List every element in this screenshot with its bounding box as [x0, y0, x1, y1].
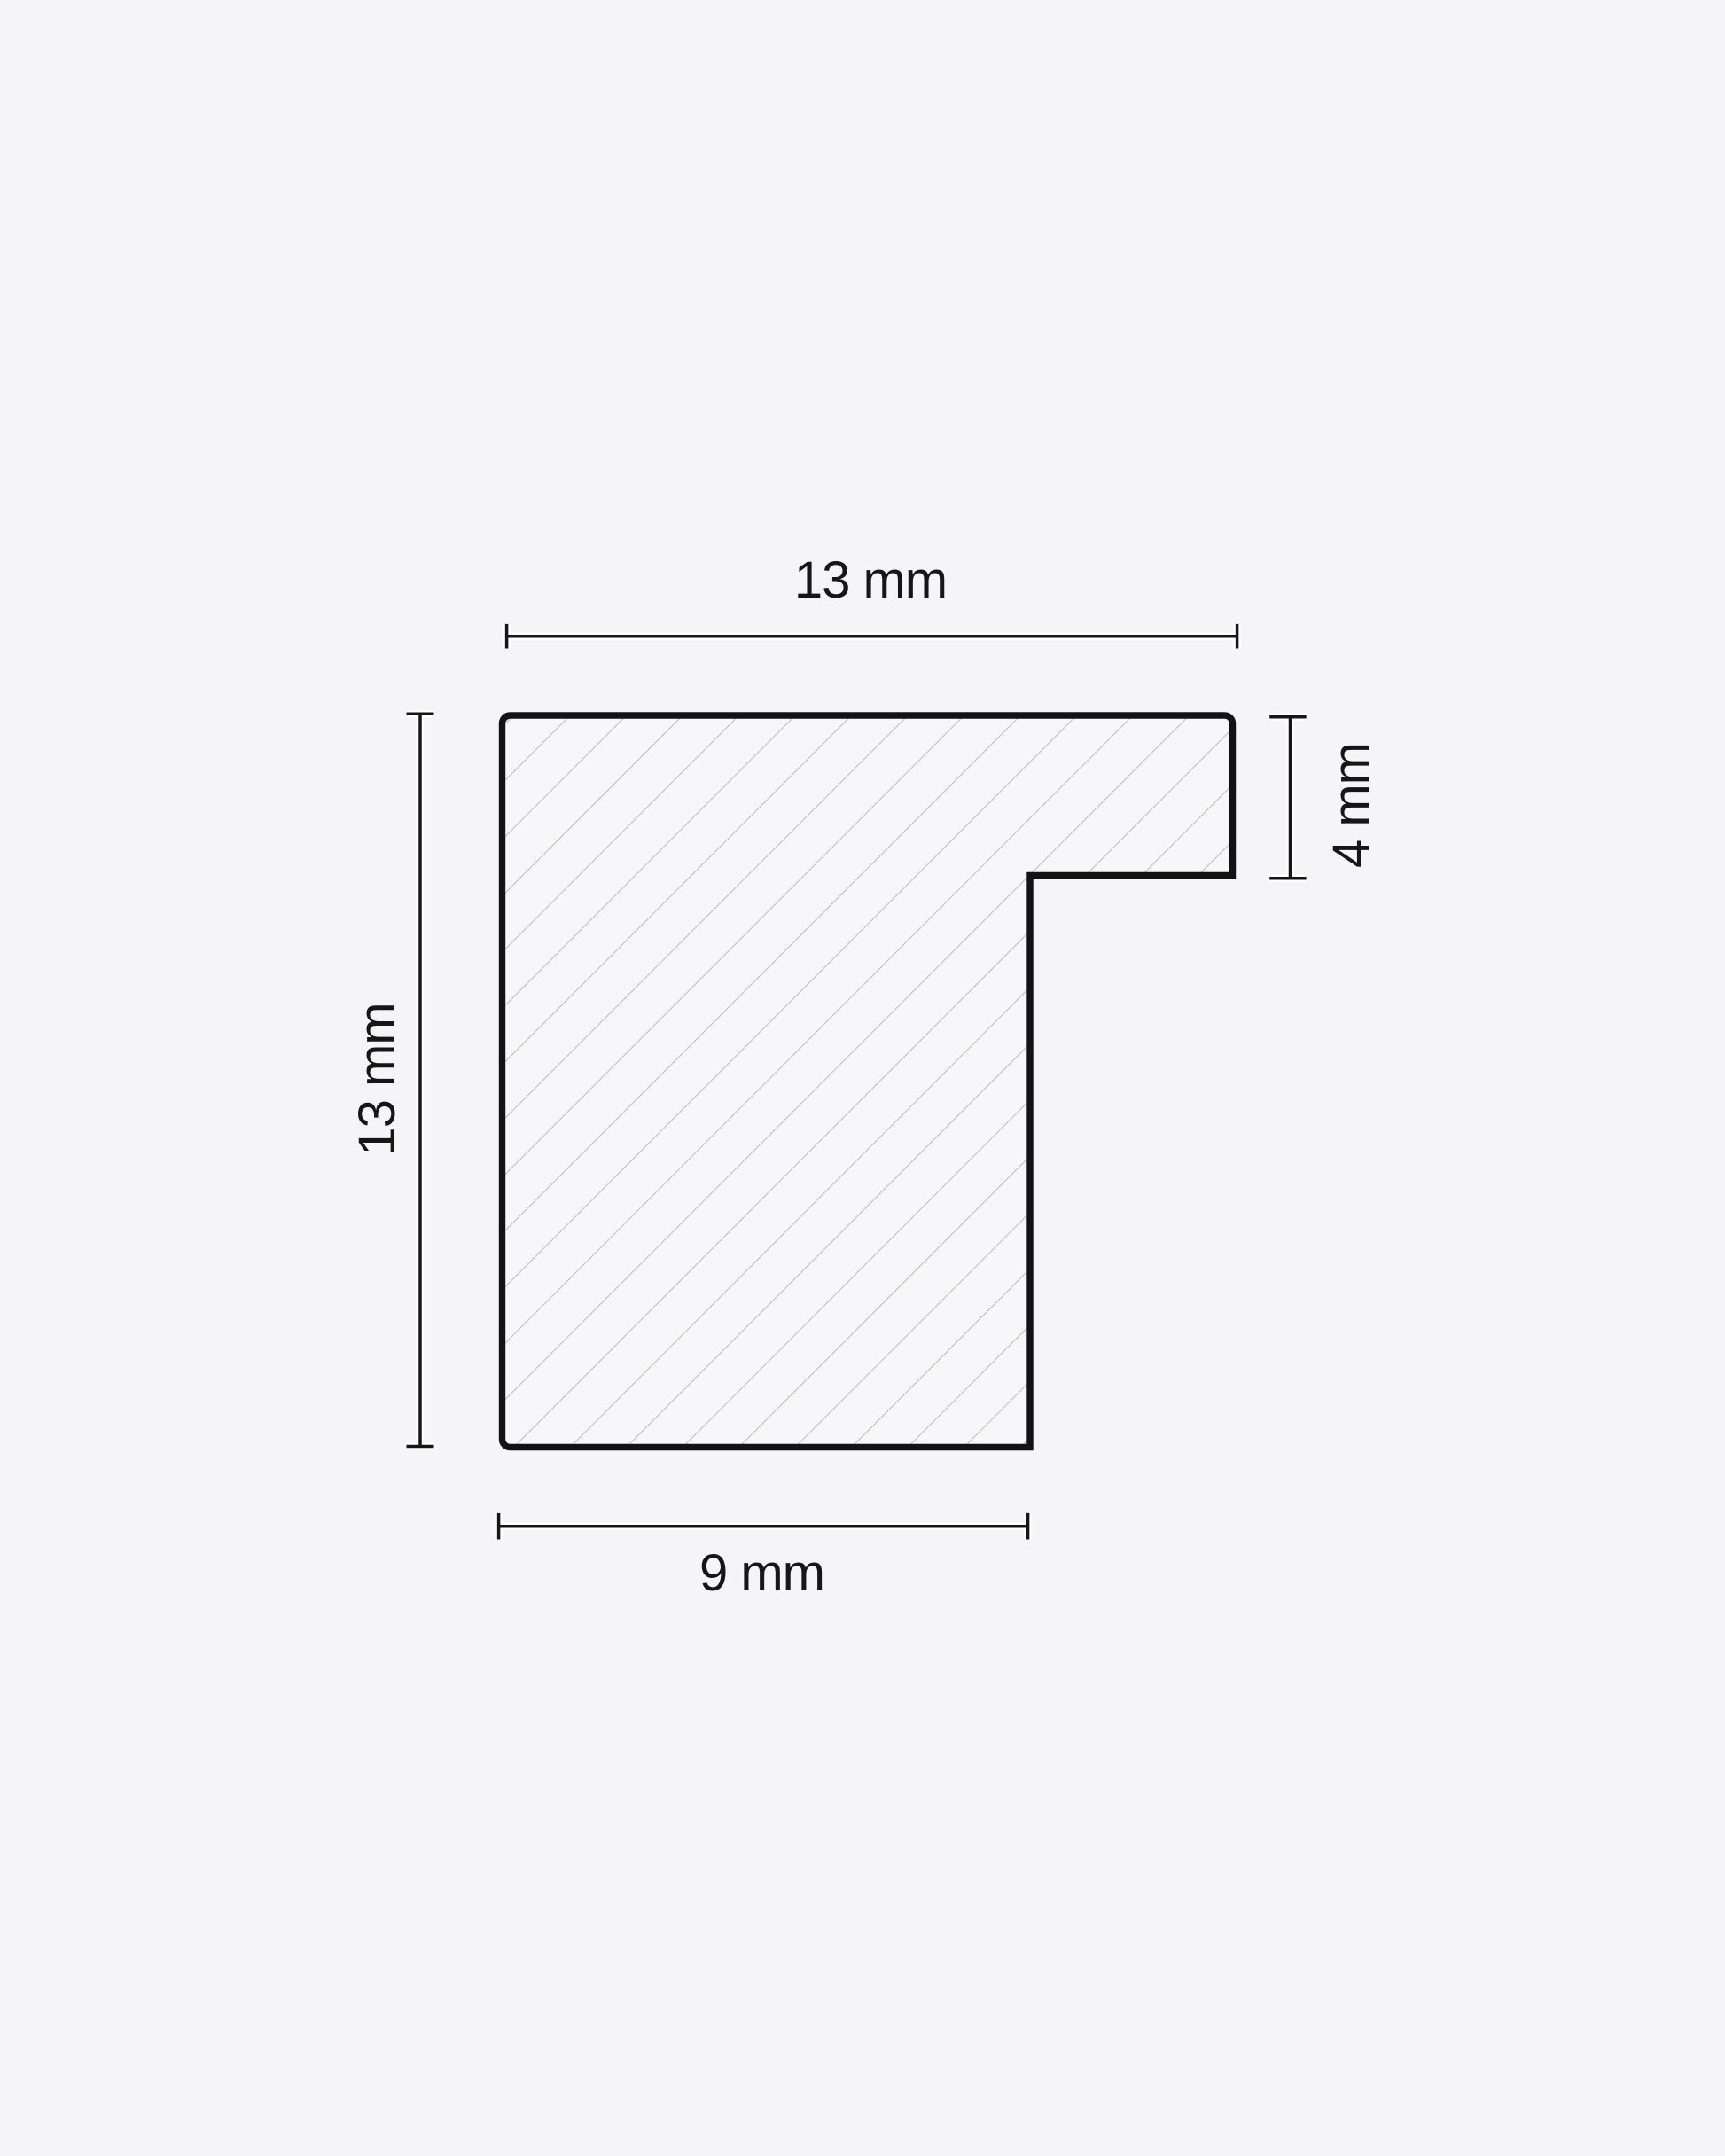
svg-text:13 mm: 13 mm [348, 1003, 406, 1155]
svg-text:4 mm: 4 mm [1323, 743, 1380, 868]
svg-text:9 mm: 9 mm [699, 1544, 824, 1602]
svg-text:13 mm: 13 mm [794, 551, 947, 609]
